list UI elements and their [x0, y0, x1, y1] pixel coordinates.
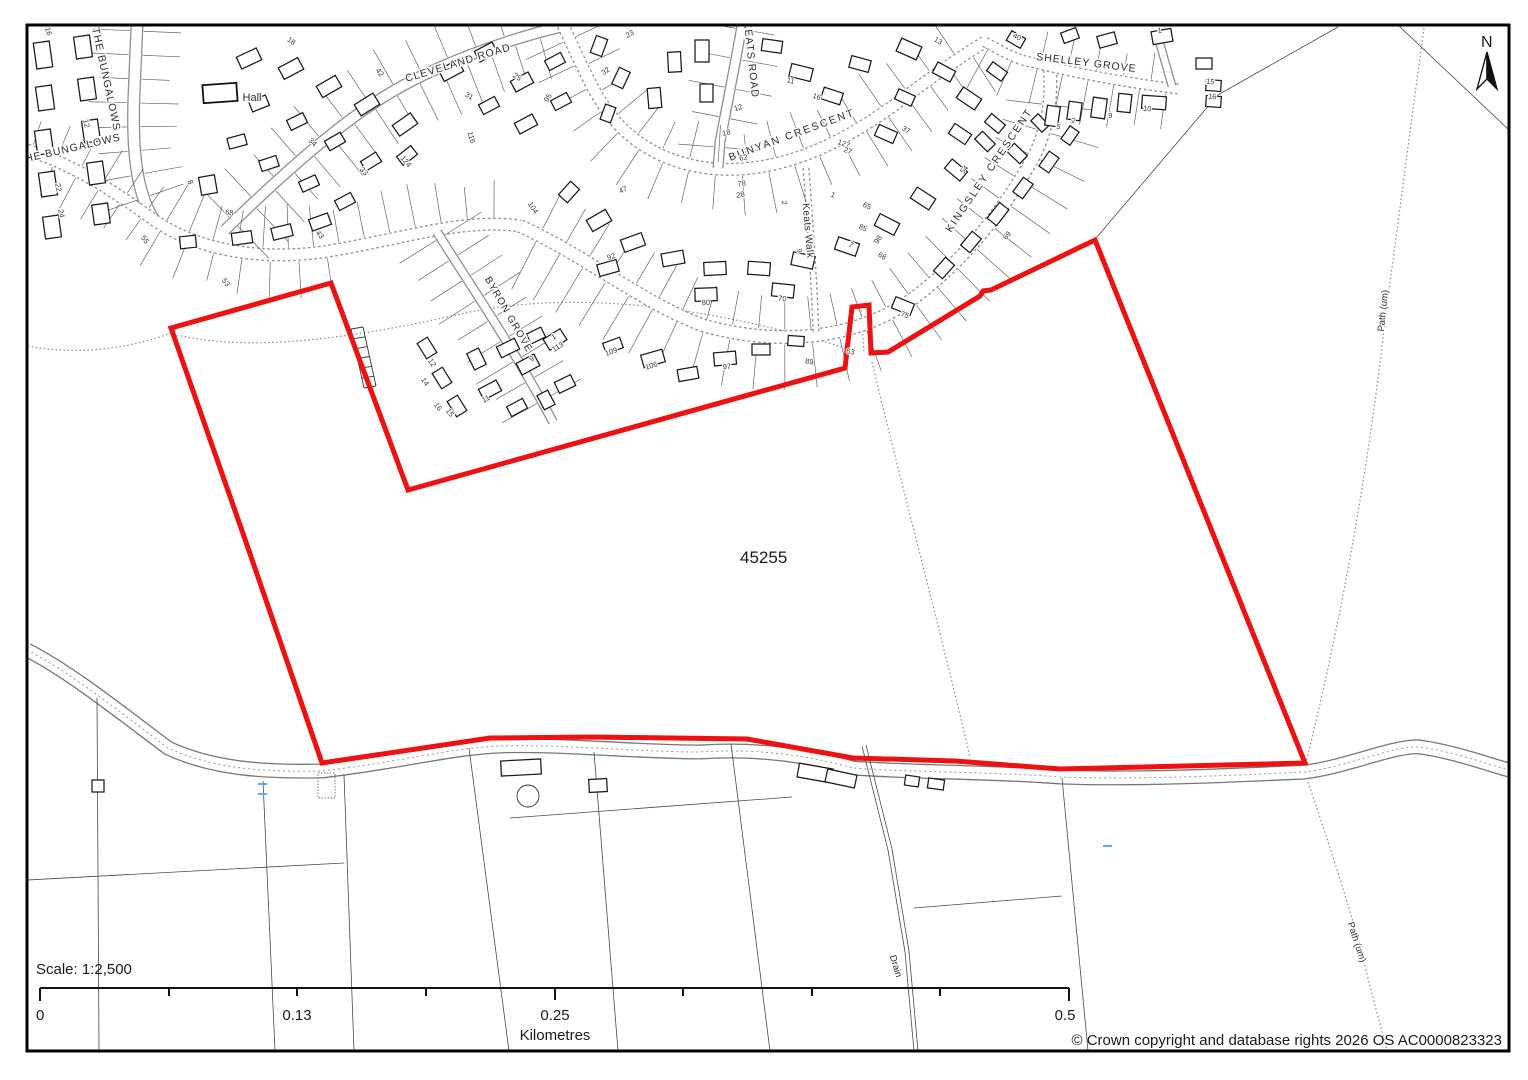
building: [761, 39, 782, 54]
building: [92, 203, 111, 225]
scale-tick-05: 0.5: [1055, 1007, 1076, 1024]
house-number-label: 16: [1208, 92, 1217, 102]
building: [33, 41, 52, 69]
building: [927, 778, 944, 790]
building: [695, 40, 709, 62]
house-number-label: 70: [778, 294, 787, 304]
building: [1196, 58, 1212, 69]
building: [92, 780, 104, 792]
building: [199, 175, 218, 196]
scale-tick-013: 0.13: [282, 1007, 311, 1024]
building: [788, 335, 805, 346]
building: [748, 261, 771, 276]
building: [700, 84, 713, 102]
building: [501, 759, 542, 776]
scale-label: Scale: 1:2,500: [36, 961, 132, 978]
house-number-label: 10: [1143, 104, 1152, 114]
house-number-label: 89: [805, 356, 815, 366]
building: [87, 161, 106, 185]
building: [35, 85, 54, 111]
building: [43, 215, 62, 239]
scale-tick-025: 0.25: [540, 1007, 569, 1024]
hall-building: [202, 83, 237, 103]
house-number-label: 97: [722, 362, 731, 372]
building: [704, 261, 727, 275]
building: [667, 52, 681, 73]
building: [179, 235, 196, 249]
building: [1117, 93, 1132, 112]
building: [1151, 28, 1173, 44]
house-number-label: 80: [701, 298, 710, 307]
house-number-label: 78: [737, 178, 747, 188]
building: [904, 775, 919, 787]
house-number-label: 68: [225, 207, 235, 217]
building: [231, 231, 252, 246]
site-plan-map: 45255 N Scale: 1:2,500 0 0.13 0.25 0.5 K…: [0, 0, 1528, 1080]
building: [589, 779, 608, 793]
building: [647, 87, 662, 108]
building: [677, 366, 699, 381]
building: [78, 77, 97, 101]
house-number-label: 15: [1206, 77, 1215, 87]
copyright-text: © Crown copyright and database rights 20…: [1071, 1032, 1502, 1049]
map-frame: [27, 25, 1509, 1051]
building: [74, 35, 93, 59]
north-label: N: [1481, 34, 1493, 51]
building: [752, 344, 770, 355]
site-ref-label: 45255: [740, 548, 787, 567]
map-page: 45255 N Scale: 1:2,500 0 0.13 0.25 0.5 K…: [0, 0, 1528, 1080]
scale-unit-label: Kilometres: [520, 1027, 591, 1044]
scale-tick-0: 0: [36, 1007, 44, 1024]
building: [1091, 97, 1108, 119]
street-label: Hall: [243, 92, 262, 104]
